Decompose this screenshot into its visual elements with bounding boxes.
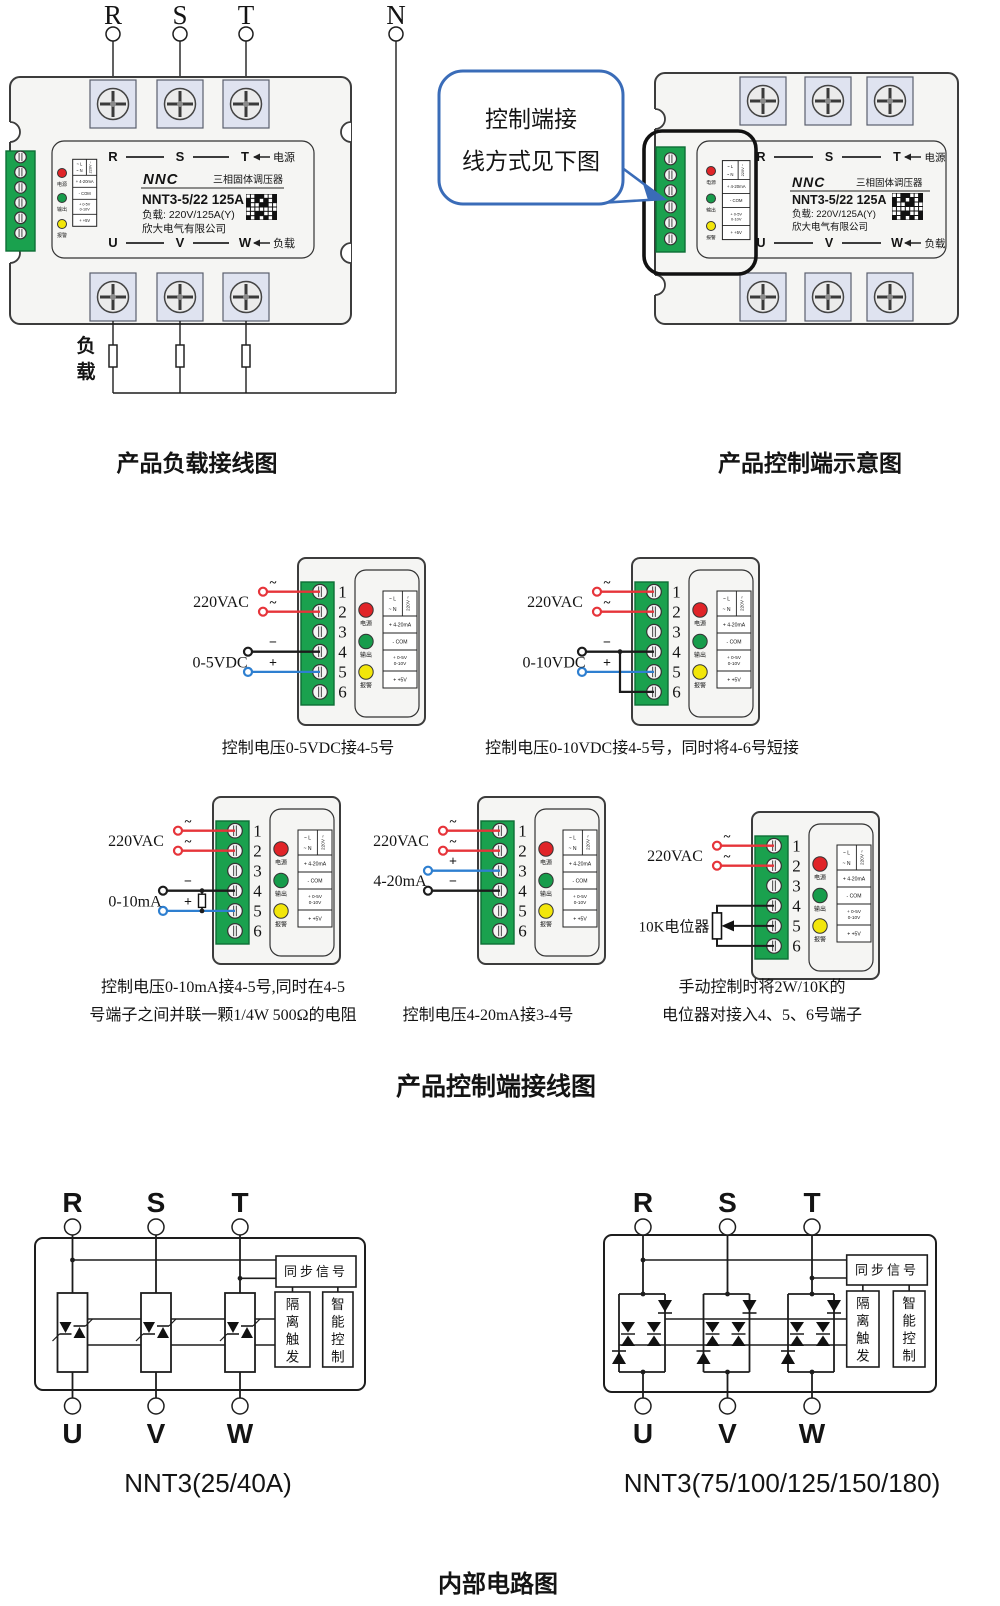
terminal-number: 5 [518, 902, 527, 921]
terminal-screw [228, 924, 243, 939]
qr-cell [915, 207, 918, 211]
led-label: 报警 [57, 232, 67, 239]
terminal-number: 2 [338, 603, 347, 622]
output-node [635, 1398, 651, 1414]
legend-row: + 0-5V [79, 203, 91, 207]
qr-cell [269, 195, 272, 198]
legend-row: + +5V [847, 931, 861, 937]
control-section-title: 产品控制端接线图 [396, 1072, 596, 1101]
qr-cell [247, 212, 250, 215]
led-label: 输出 [57, 206, 67, 213]
qr-cell [247, 208, 250, 211]
input-phase-label: R [62, 1187, 82, 1218]
legend-row: - COM [847, 893, 862, 899]
legend-220v: 220V ~ [860, 850, 865, 865]
legend-row: + +5V [573, 916, 587, 922]
terminal-screw [665, 153, 677, 165]
led-output [539, 873, 553, 887]
diagram-caption: 控制电压4-20mA接3-4号 [403, 1006, 574, 1024]
qr-cell [910, 212, 913, 216]
internal-section-title: 内部电路图 [438, 1570, 558, 1598]
wire-polarity-symbol: − [269, 636, 277, 651]
terminal-screw [15, 151, 27, 163]
diagram-caption: 电位器对接入4、5、6号端子 [662, 1006, 862, 1024]
ac-source-label: 220VAC [193, 594, 249, 611]
smart-control-label: 能 [331, 1315, 345, 1330]
smart-control-label: 智 [331, 1297, 345, 1312]
led-alarm [274, 904, 288, 918]
thyristor-triangle [621, 1322, 635, 1333]
panel-phase: S [176, 149, 185, 164]
junction-dot [725, 1292, 730, 1297]
wiper-arrow [722, 920, 735, 931]
legend-row: 0-10V [728, 661, 741, 666]
input-node [635, 1219, 651, 1235]
qr-cell [269, 203, 272, 206]
terminal-number: 2 [253, 842, 262, 861]
legend-220v: 220V ~ [740, 163, 745, 176]
qr-code [892, 193, 923, 220]
terminal-number: 2 [518, 842, 527, 861]
wire-polarity-symbol: + [603, 656, 611, 671]
load-spec: 负载: 220V/125A(Y) [142, 208, 235, 221]
legend-220v: 220V ~ [89, 160, 93, 173]
terminal-screw [493, 904, 508, 919]
load-label: 负 [76, 334, 95, 357]
diagram-caption: 手动控制时将2W/10K的 [678, 978, 845, 996]
qr-cell [260, 208, 263, 211]
input-phase-label: T [231, 1187, 248, 1218]
led-alarm [539, 904, 553, 918]
legend-220v: 220V ~ [321, 835, 326, 850]
screw-center [243, 101, 249, 107]
legend-row: 0-10V [731, 217, 742, 222]
terminal-number: 6 [672, 683, 681, 702]
terminal-number: 1 [338, 583, 347, 602]
legend-220v: 220V ~ [406, 596, 411, 611]
legend-row: + +5V [79, 218, 90, 223]
panel-phase: S [825, 150, 833, 164]
led-power [539, 842, 553, 856]
signal-source-label: 0-10mA [108, 893, 162, 910]
wire-polarity-symbol: ~ [185, 834, 192, 849]
isolated-trigger-label: 触 [286, 1332, 300, 1347]
smart-control-label: 制 [902, 1349, 916, 1364]
wire-tip [713, 842, 721, 850]
load-wiring-figure: RSTNRST电源UVW负载电源输出报警~ L~ N220V ~+ 4-20mA… [6, 0, 406, 476]
led-output [707, 194, 716, 203]
led-output [693, 634, 707, 648]
qr-cell [893, 194, 896, 198]
qr-cell [910, 207, 913, 211]
qr-cell [915, 194, 918, 198]
legend-row: + 4-20mA [304, 861, 327, 867]
thyristor-triangle [743, 1300, 757, 1312]
terminal-number: 6 [792, 937, 801, 956]
terminal-number: 4 [792, 897, 801, 916]
brand-logo: NNC [143, 171, 179, 188]
legend-n: ~ N [727, 172, 734, 177]
sync-signal-label: 同步信号 [284, 1264, 348, 1279]
signal-source-label: 0-5VDC [192, 654, 247, 671]
wire-polarity-symbol: + [449, 855, 457, 870]
terminal-screw [665, 217, 677, 229]
legend-row: + 4-20mA [76, 179, 94, 184]
led-label: 输出 [694, 651, 706, 659]
led-power [693, 603, 707, 617]
control-diagram-3: 123456电源输出报警~ L~ N220V ~+ 4-20mA- COM+ 0… [89, 797, 356, 1024]
terminal-number: 3 [792, 877, 801, 896]
screw-center [177, 101, 183, 107]
terminal-number: 4 [672, 643, 681, 662]
control-diagram-2: 123456电源输出报警~ L~ N220V ~+ 4-20mA- COM+ 0… [485, 558, 799, 757]
led-label: 报警 [706, 234, 716, 241]
internal-circuit-left: 同步信号隔离触发智能控制RUSVTWNNT3(25/40A) [35, 1187, 365, 1498]
input-phase-label: S [147, 1187, 166, 1218]
terminal-number: 4 [518, 882, 527, 901]
led-output [813, 888, 827, 902]
led-label: 报警 [814, 936, 826, 944]
input-node [804, 1219, 820, 1235]
legend-row: + 4-20mA [727, 184, 746, 189]
thyristor-triangle [790, 1336, 804, 1347]
led-label: 电源 [694, 620, 706, 628]
terminal-number: 1 [518, 822, 527, 841]
diagram-caption: 号端子之间并联一颗1/4W 500Ω的电阻 [89, 1006, 356, 1024]
legend-l: ~ L [723, 597, 730, 603]
output-node [65, 1398, 81, 1414]
legend-row: + 0-5V [727, 655, 742, 660]
ac-source-label: 220VAC [527, 594, 583, 611]
model-number: NNT3-5/22 125A [142, 192, 244, 207]
legend-row: + 0-5V [393, 655, 408, 660]
wire-tip [259, 588, 267, 596]
terminal-number: 3 [338, 623, 347, 642]
legend-220v: 220V ~ [586, 835, 591, 850]
smart-control-label: 制 [331, 1350, 345, 1365]
qr-cell [901, 203, 904, 207]
thyristor-triangle [816, 1322, 830, 1333]
qr-cell [919, 207, 922, 211]
internal-circuit-right: 同步信号隔离触发智能控制RUSVTWNNT3(75/100/125/150/18… [604, 1187, 940, 1498]
screw-center [825, 294, 831, 300]
wire-polarity-symbol: + [184, 895, 192, 910]
thyristor-triangle [658, 1300, 672, 1312]
qr-cell [269, 212, 272, 215]
led-label: 报警 [694, 682, 706, 690]
phase-label: S [172, 0, 187, 30]
qr-cell [906, 207, 909, 211]
terminal-number: 6 [253, 922, 262, 941]
legend-row: - COM [730, 198, 743, 203]
output-phase-label: U [62, 1418, 82, 1449]
wire-tip [439, 827, 447, 835]
qr-cell [255, 203, 258, 206]
callout-bubble [439, 71, 623, 204]
qr-cell [897, 198, 900, 202]
screw-center [177, 294, 183, 300]
qr-cell [910, 194, 913, 198]
control-diagram-1: 123456电源输出报警~ L~ N220V ~+ 4-20mA- COM+ 0… [192, 558, 425, 757]
wire-tip [174, 827, 182, 835]
diagram-canvas: RSTNRST电源UVW负载电源输出报警~ L~ N220V ~+ 4-20mA… [0, 0, 1000, 1606]
junction-dot [810, 1370, 815, 1375]
legend-n: ~ N [842, 861, 850, 867]
legend-row: + +5V [308, 916, 322, 922]
legend-row: + 0-5V [308, 894, 323, 899]
legend-220v: 220V ~ [740, 596, 745, 611]
wire-polarity-symbol: − [184, 875, 192, 890]
led-power [58, 169, 67, 178]
neutral-label: N [386, 0, 406, 30]
triac-module [58, 1293, 88, 1372]
terminal-screw [15, 182, 27, 194]
screw-center [887, 294, 893, 300]
qr-cell [251, 203, 254, 206]
input-node [65, 1219, 81, 1235]
qr-cell [273, 208, 276, 211]
qr-cell [251, 212, 254, 215]
terminal-screw [15, 166, 27, 178]
panel-phase: V [825, 236, 834, 250]
screw-center [825, 98, 831, 104]
terminal-number: 4 [338, 643, 347, 662]
terminal-screw [665, 185, 677, 197]
panel-phase: T [893, 150, 901, 164]
legend-n: ~ N [303, 846, 311, 852]
qr-cell [893, 207, 896, 211]
terminal-screw [665, 169, 677, 181]
led-label: 报警 [360, 682, 372, 690]
terminal-number: 6 [518, 922, 527, 941]
led-label: 输出 [814, 905, 826, 913]
panel-side-label: 负载 [925, 237, 946, 250]
led-alarm [707, 222, 716, 231]
circuit-caption: NNT3(25/40A) [124, 1468, 292, 1498]
wire-tip [439, 847, 447, 855]
isolated-trigger-label: 隔 [286, 1297, 300, 1312]
isolated-trigger-label: 触 [856, 1331, 870, 1346]
terminal-number: 5 [672, 663, 681, 682]
ac-source-label: 220VAC [647, 848, 703, 865]
screw-center [110, 294, 116, 300]
bubble-text: 控制端接 [485, 106, 577, 132]
phase-label: R [104, 0, 122, 30]
qr-cell [260, 216, 263, 219]
qr-cell [269, 199, 272, 202]
panel-phase: T [241, 149, 249, 164]
qr-cell [273, 203, 276, 206]
led-output [274, 873, 288, 887]
bubble-text: 线方式见下图 [462, 148, 600, 174]
brand-logo: NNC [792, 174, 825, 190]
led-label: 电源 [814, 874, 826, 882]
output-phase-label: W [799, 1418, 826, 1449]
led-power [707, 167, 716, 176]
panel-phase: W [891, 236, 903, 250]
screw-center [243, 294, 249, 300]
input-node [148, 1219, 164, 1235]
led-alarm [693, 665, 707, 679]
legend-row: + 4-20mA [389, 622, 412, 628]
legend-row: 0-10V [309, 900, 322, 905]
terminal-number: 2 [672, 603, 681, 622]
wire-polarity-symbol: − [449, 875, 457, 890]
screw-center [760, 294, 766, 300]
thyristor-triangle [647, 1322, 661, 1333]
panel-phase: R [108, 149, 118, 164]
qr-cell [264, 212, 267, 215]
ac-source-label: 220VAC [108, 833, 164, 850]
wire-polarity-symbol: + [269, 656, 277, 671]
triac-module [141, 1293, 171, 1372]
legend-row: + 0-5V [847, 909, 862, 914]
qr-cell [915, 203, 918, 207]
ac-source-label: 220VAC [373, 833, 429, 850]
thyristor-triangle [781, 1352, 795, 1364]
input-node [232, 1219, 248, 1235]
phase-node [239, 27, 253, 41]
legend-n: ~ N [388, 607, 396, 613]
legend-row: 0-10V [574, 900, 587, 905]
thyristor-triangle [732, 1322, 746, 1333]
junction-dot [618, 649, 623, 654]
led-label: 输出 [706, 207, 716, 214]
legend-l: ~ L [77, 161, 84, 166]
terminal-number: 1 [253, 822, 262, 841]
company-name: 欣大电气有限公司 [792, 221, 868, 233]
output-node [148, 1398, 164, 1414]
wire-polarity-symbol: ~ [724, 849, 731, 864]
qr-cell [906, 198, 909, 202]
qr-cell [897, 216, 900, 220]
terminal-number: 2 [792, 857, 801, 876]
thyristor-triangle [732, 1336, 746, 1347]
figure-caption: 产品控制端示意图 [718, 450, 902, 476]
control-diagram-4: 123456电源输出报警~ L~ N220V ~+ 4-20mA- COM+ 0… [373, 797, 605, 1024]
terminal-screw [15, 227, 27, 239]
qr-cell [260, 199, 263, 202]
wire-tip [593, 588, 601, 596]
load-resistor [109, 345, 117, 367]
terminal-screw [665, 201, 677, 213]
output-phase-label: U [633, 1418, 653, 1449]
isolated-trigger-label: 隔 [856, 1296, 870, 1311]
terminal-screw [313, 624, 328, 639]
led-power [274, 842, 288, 856]
led-label: 报警 [540, 921, 552, 929]
input-phase-label: T [803, 1187, 820, 1218]
legend-row: + 0-5V [573, 894, 588, 899]
led-label: 输出 [275, 890, 287, 898]
figure-caption: 产品负载接线图 [117, 450, 278, 476]
qr-cell [247, 195, 250, 198]
smart-control-label: 智 [902, 1296, 916, 1311]
qr-cell [264, 208, 267, 211]
panel-phase: R [756, 150, 765, 164]
legend-l: ~ L [843, 851, 850, 857]
smart-control-label: 能 [902, 1314, 916, 1329]
terminal-screw [493, 924, 508, 939]
input-phase-label: R [633, 1187, 653, 1218]
junction-dot [810, 1292, 815, 1297]
triac-module [225, 1293, 255, 1372]
wire-polarity-symbol: ~ [185, 814, 192, 829]
terminal-number: 5 [253, 902, 262, 921]
section-title: 内部电路图 [438, 1570, 558, 1598]
led-label: 电源 [275, 859, 287, 867]
qr-cell [901, 207, 904, 211]
legend-row: + +5V [730, 230, 742, 235]
product-wiring-sheet: RSTNRST电源UVW负载电源输出报警~ L~ N220V ~+ 4-20mA… [0, 0, 1000, 1606]
wire-polarity-symbol: − [603, 636, 611, 651]
terminal-number: 3 [253, 862, 262, 881]
wire-polarity-symbol: ~ [724, 829, 731, 844]
qr-cell [251, 199, 254, 202]
panel-side-label: 电源 [273, 150, 295, 164]
panel-side-label: 电源 [925, 151, 946, 164]
thyristor-triangle [612, 1352, 626, 1364]
potentiometer-body [713, 913, 722, 939]
input-node [720, 1219, 736, 1235]
led-output [58, 194, 67, 203]
qr-cell [915, 212, 918, 216]
junction-dot [810, 1276, 815, 1281]
thyristor-triangle [706, 1322, 720, 1333]
signal-source-label: 4-20mA [373, 873, 427, 890]
legend-l: ~ L [569, 836, 576, 842]
qr-cell [269, 208, 272, 211]
qr-cell [251, 208, 254, 211]
junction-dot [70, 1258, 75, 1263]
legend-row: - COM [308, 878, 323, 884]
panel-side-label: 负载 [273, 236, 295, 250]
legend-n: ~ N [568, 846, 576, 852]
signal-source-label: 0-10VDC [522, 654, 585, 671]
phase-node [106, 27, 120, 41]
output-phase-label: V [718, 1418, 737, 1449]
qr-cell [251, 195, 254, 198]
legend-l: ~ L [304, 836, 311, 842]
model-number: NNT3-5/22 125A [792, 193, 887, 207]
qr-code [246, 194, 277, 220]
diagram-caption: 控制电压0-10VDC接4-5号，同时将4-6号短接 [485, 739, 799, 757]
terminal-number: 5 [338, 663, 347, 682]
phase-node [173, 27, 187, 41]
terminal-screw [313, 685, 328, 700]
junction-dot [641, 1370, 646, 1375]
company-name: 欣大电气有限公司 [142, 222, 226, 235]
terminal-number: 3 [672, 623, 681, 642]
qr-cell [893, 212, 896, 216]
thyristor-triangle [827, 1300, 841, 1312]
terminal-screw [15, 197, 27, 209]
terminal-number: 3 [518, 862, 527, 881]
screw-center [887, 98, 893, 104]
junction-dot [238, 1276, 243, 1281]
wire-tip [259, 608, 267, 616]
control-overview-figure: RST电源UVW负载电源输出报警~ L~ N220V ~+ 4-20mA- CO… [439, 71, 958, 476]
qr-cell [919, 203, 922, 207]
isolated-trigger-label: 离 [286, 1314, 300, 1330]
legend-row: + +5V [727, 677, 741, 683]
led-alarm [813, 919, 827, 933]
sync-signal-label: 同步信号 [855, 1263, 919, 1278]
qr-cell [897, 207, 900, 211]
smart-control-label: 控 [331, 1332, 345, 1347]
neutral-node [389, 27, 403, 41]
thyristor-triangle [816, 1336, 830, 1347]
